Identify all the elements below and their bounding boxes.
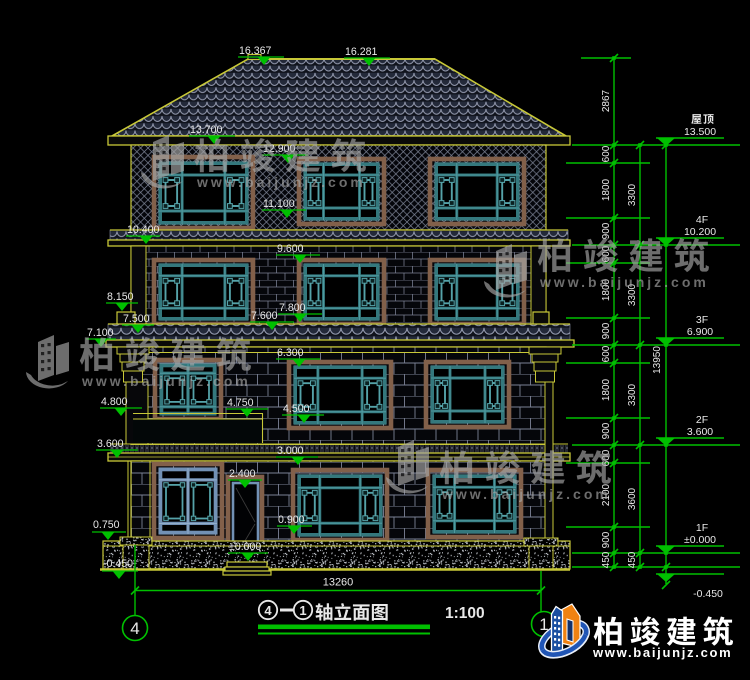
svg-text:2.400: 2.400 [229, 468, 256, 480]
svg-text:900: 900 [601, 422, 612, 439]
svg-text:900: 900 [601, 222, 612, 239]
svg-text:3600: 3600 [627, 487, 638, 510]
svg-text:13.700: 13.700 [190, 124, 223, 136]
svg-text:0.900: 0.900 [278, 514, 305, 526]
svg-text:-0.450: -0.450 [103, 558, 133, 570]
svg-text:9.600: 9.600 [277, 243, 304, 255]
svg-text:16.281: 16.281 [345, 46, 378, 58]
svg-text:2867: 2867 [601, 89, 612, 112]
svg-text:1: 1 [299, 603, 306, 618]
svg-text:www.baijunjz.com: www.baijunjz.com [441, 486, 611, 502]
svg-text:1:100: 1:100 [445, 605, 485, 622]
svg-text:900: 900 [601, 531, 612, 548]
svg-text:450: 450 [601, 551, 612, 568]
svg-text:1F: 1F [696, 522, 708, 534]
svg-text:www.baijunjz.com: www.baijunjz.com [592, 645, 732, 660]
svg-text:4F: 4F [696, 214, 708, 226]
svg-text:13.500: 13.500 [684, 126, 716, 138]
svg-text:±0.000: ±0.000 [684, 534, 716, 546]
svg-text:1800: 1800 [601, 178, 612, 201]
svg-text:600: 600 [601, 345, 612, 362]
svg-text:7.600: 7.600 [251, 310, 278, 322]
svg-text:2F: 2F [696, 414, 708, 426]
svg-text:450: 450 [627, 551, 638, 568]
svg-text:3.600: 3.600 [97, 438, 124, 450]
svg-text:6.900: 6.900 [687, 326, 713, 338]
svg-text:4: 4 [264, 603, 272, 618]
svg-text:www.baijunjz.com: www.baijunjz.com [196, 174, 366, 190]
svg-text:-0.450: -0.450 [693, 588, 723, 600]
svg-text:7.500: 7.500 [123, 313, 150, 325]
svg-text:4.800: 4.800 [101, 396, 128, 408]
svg-text:7.100: 7.100 [87, 327, 114, 339]
svg-text:10.200: 10.200 [684, 226, 716, 238]
svg-text:13950: 13950 [652, 346, 663, 374]
svg-text:3300: 3300 [627, 383, 638, 406]
svg-text:3F: 3F [696, 314, 708, 326]
svg-text:1800: 1800 [601, 378, 612, 401]
svg-text:600: 600 [601, 145, 612, 162]
svg-text:16.367: 16.367 [239, 45, 272, 57]
svg-text:4: 4 [130, 619, 139, 638]
svg-text:4.750: 4.750 [227, 397, 254, 409]
svg-text:7.800: 7.800 [279, 302, 306, 314]
svg-text:3.000: 3.000 [277, 445, 304, 457]
svg-text:3.600: 3.600 [687, 426, 713, 438]
svg-text:8.150: 8.150 [107, 291, 134, 303]
svg-text:0.750: 0.750 [93, 519, 120, 531]
svg-text:±0.000: ±0.000 [229, 541, 261, 553]
svg-text:10.400: 10.400 [127, 224, 160, 236]
svg-text:4.500: 4.500 [283, 403, 310, 415]
svg-text:13260: 13260 [323, 577, 354, 589]
svg-text:900: 900 [601, 322, 612, 339]
svg-text:www.baijunjz.com: www.baijunjz.com [539, 274, 709, 290]
svg-text:11.100: 11.100 [263, 198, 295, 210]
svg-text:3300: 3300 [627, 183, 638, 206]
svg-text:6.300: 6.300 [277, 347, 304, 359]
svg-text:www.baijunjz.com: www.baijunjz.com [81, 373, 251, 389]
